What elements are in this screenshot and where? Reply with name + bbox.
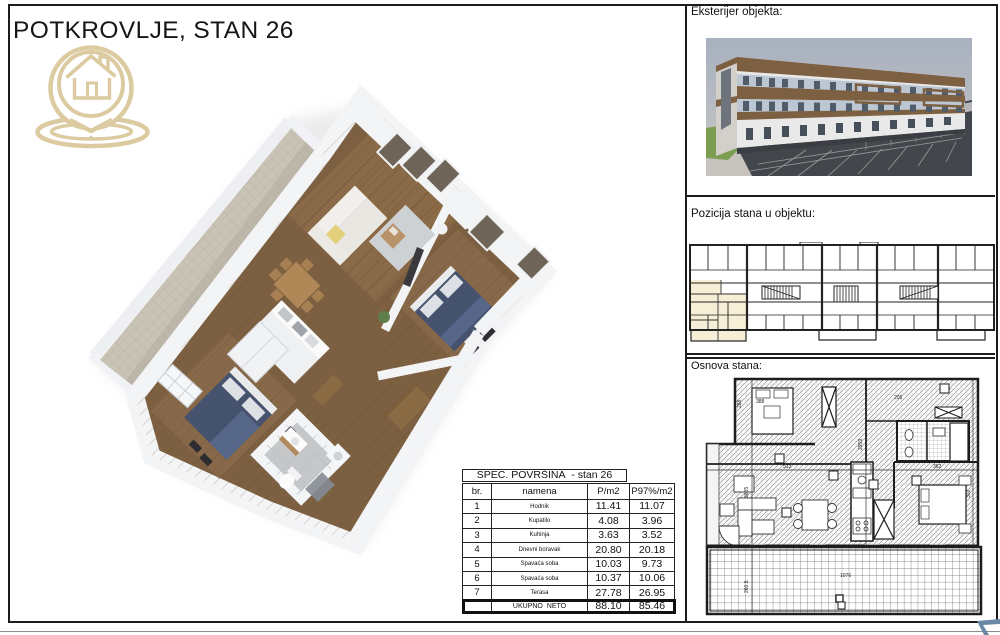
svg-text:205: 205 [894,395,903,401]
svg-text:3605: 3605 [744,487,750,498]
svg-text:2959: 2959 [858,439,864,450]
svg-text:388: 388 [756,399,765,405]
svg-text:260.5: 260.5 [744,580,750,593]
svg-text:362: 362 [933,464,942,470]
svg-text:513: 513 [783,464,792,470]
svg-text:1076: 1076 [840,573,851,579]
svg-text:288: 288 [737,399,743,408]
svg-text:302: 302 [966,489,972,498]
